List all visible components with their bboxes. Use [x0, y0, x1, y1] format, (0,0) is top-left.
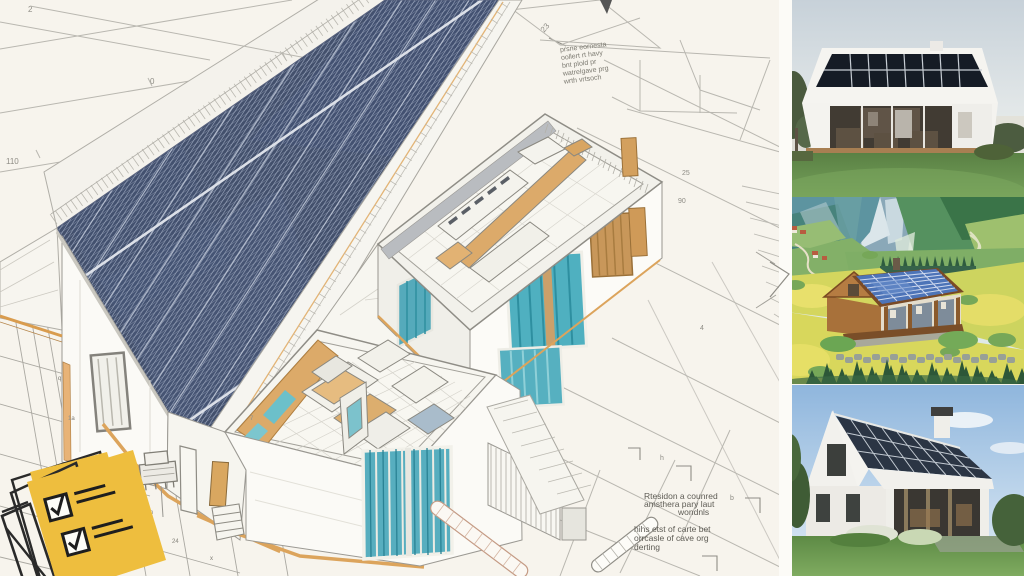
svg-text:wondnls: wondnls [677, 507, 709, 517]
svg-text:4: 4 [700, 325, 704, 332]
svg-text:110: 110 [6, 157, 19, 166]
svg-text:b: b [730, 495, 734, 502]
svg-text:q: q [58, 376, 61, 382]
svg-text:1a: 1a [68, 416, 75, 422]
svg-text:0: 0 [150, 77, 155, 86]
svg-text:derting: derting [634, 542, 660, 552]
svg-text:25: 25 [682, 170, 690, 177]
svg-text:h: h [660, 455, 664, 462]
svg-text:x: x [210, 556, 213, 562]
svg-text:24: 24 [172, 539, 179, 545]
svg-text:90: 90 [678, 198, 686, 205]
